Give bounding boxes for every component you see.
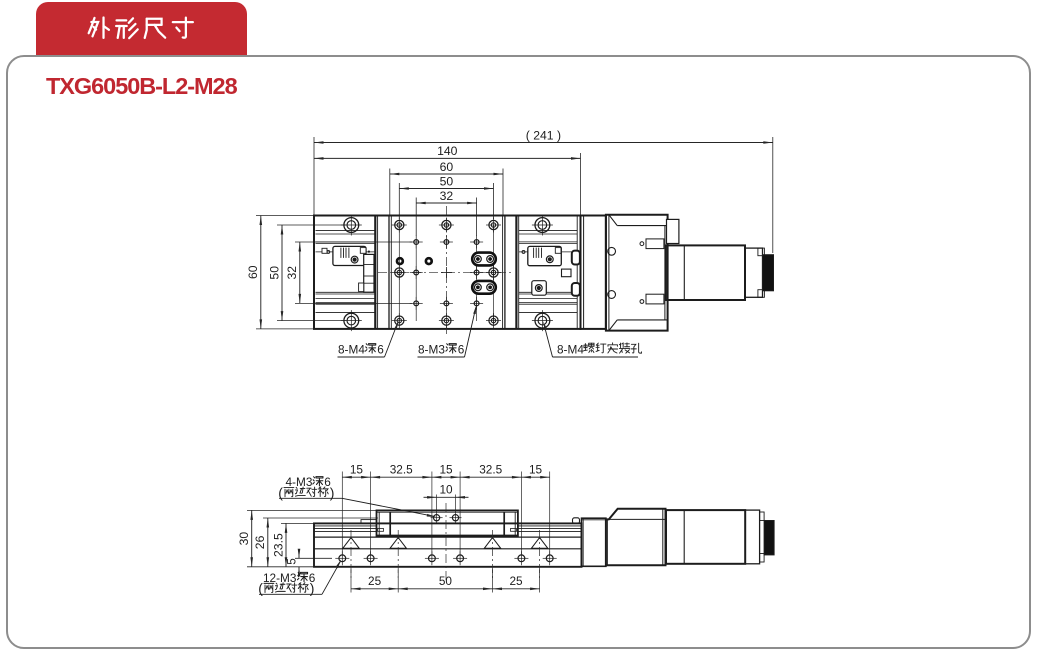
- svg-text:25: 25: [509, 574, 523, 588]
- svg-text:50: 50: [440, 174, 454, 188]
- svg-text:50: 50: [267, 266, 281, 280]
- svg-text:140: 140: [437, 144, 458, 158]
- svg-text:( 241 ): ( 241 ): [526, 128, 561, 142]
- svg-text:TXG6050B-L2-M28: TXG6050B-L2-M28: [46, 73, 238, 99]
- svg-text:60: 60: [246, 265, 260, 279]
- svg-text:15: 15: [439, 463, 453, 477]
- svg-text:6: 6: [377, 342, 384, 356]
- svg-text:26: 26: [253, 535, 267, 549]
- svg-text:8-M4: 8-M4: [557, 342, 584, 356]
- svg-text:12-M3: 12-M3: [263, 571, 297, 585]
- svg-text:32: 32: [440, 189, 454, 203]
- svg-text:15: 15: [350, 463, 364, 477]
- svg-text:32.5: 32.5: [390, 463, 413, 477]
- svg-text:23.5: 23.5: [271, 533, 285, 557]
- svg-text:10: 10: [439, 482, 453, 496]
- svg-text:4-M3: 4-M3: [286, 475, 313, 489]
- svg-text:32.5: 32.5: [479, 463, 502, 477]
- svg-text:30: 30: [237, 532, 251, 546]
- svg-text:): ): [310, 580, 315, 596]
- svg-text:32: 32: [285, 266, 299, 280]
- svg-text:25: 25: [368, 574, 382, 588]
- svg-text:50: 50: [439, 574, 453, 588]
- svg-text:8-M3: 8-M3: [418, 342, 445, 356]
- svg-text:60: 60: [440, 160, 454, 174]
- svg-text:6: 6: [458, 342, 465, 356]
- svg-text:8-M4: 8-M4: [338, 342, 365, 356]
- svg-text:5: 5: [284, 558, 298, 565]
- svg-text:15: 15: [529, 463, 543, 477]
- svg-text:(: (: [258, 580, 263, 596]
